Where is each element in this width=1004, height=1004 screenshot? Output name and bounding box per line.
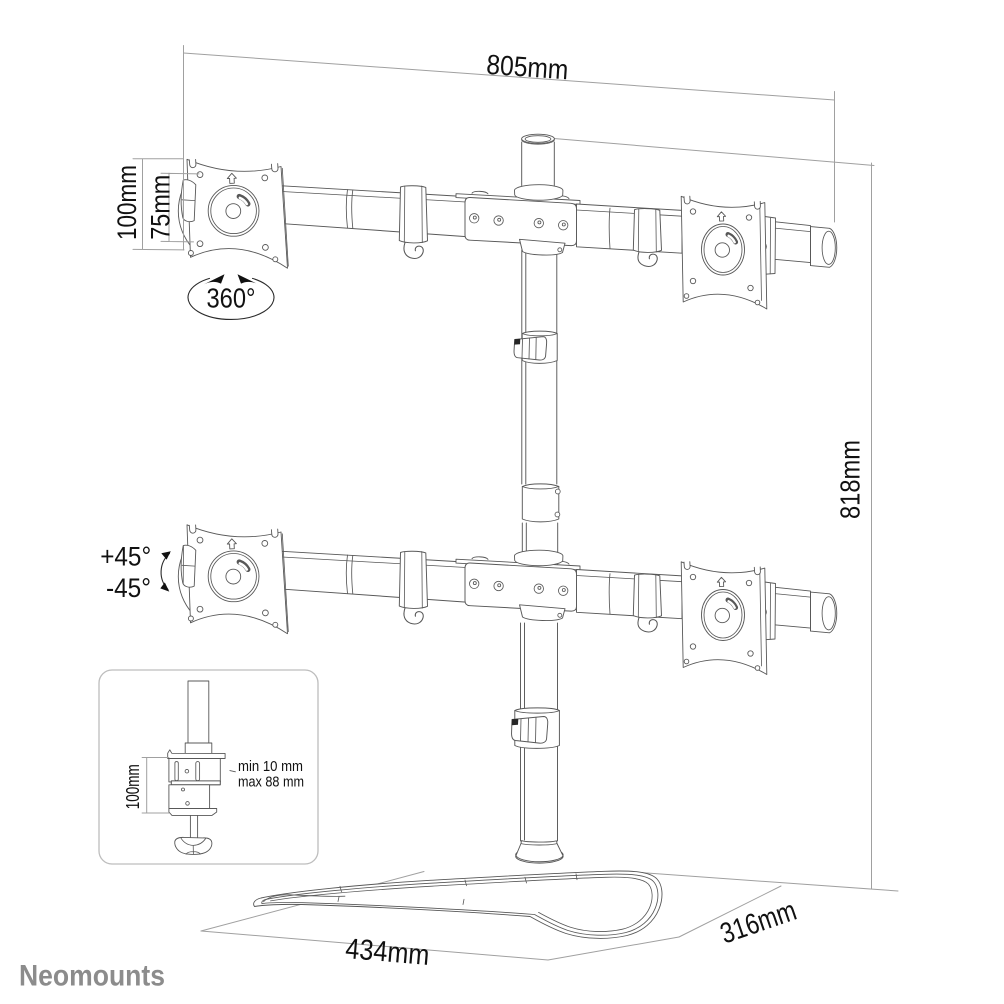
svg-text:-45°: -45° — [106, 573, 151, 603]
svg-text:316mm: 316mm — [716, 895, 800, 951]
svg-text:100mm: 100mm — [112, 165, 142, 240]
svg-text:100mm: 100mm — [123, 764, 143, 809]
svg-text:Neomounts: Neomounts — [19, 960, 165, 993]
svg-text:434mm: 434mm — [344, 933, 430, 972]
svg-text:max 88 mm: max 88 mm — [238, 773, 304, 790]
svg-text:818mm: 818mm — [835, 440, 866, 519]
svg-text:360°: 360° — [207, 283, 256, 314]
svg-text:75mm: 75mm — [145, 175, 175, 240]
svg-text:805mm: 805mm — [485, 49, 569, 86]
svg-text:+45°: +45° — [100, 542, 151, 572]
